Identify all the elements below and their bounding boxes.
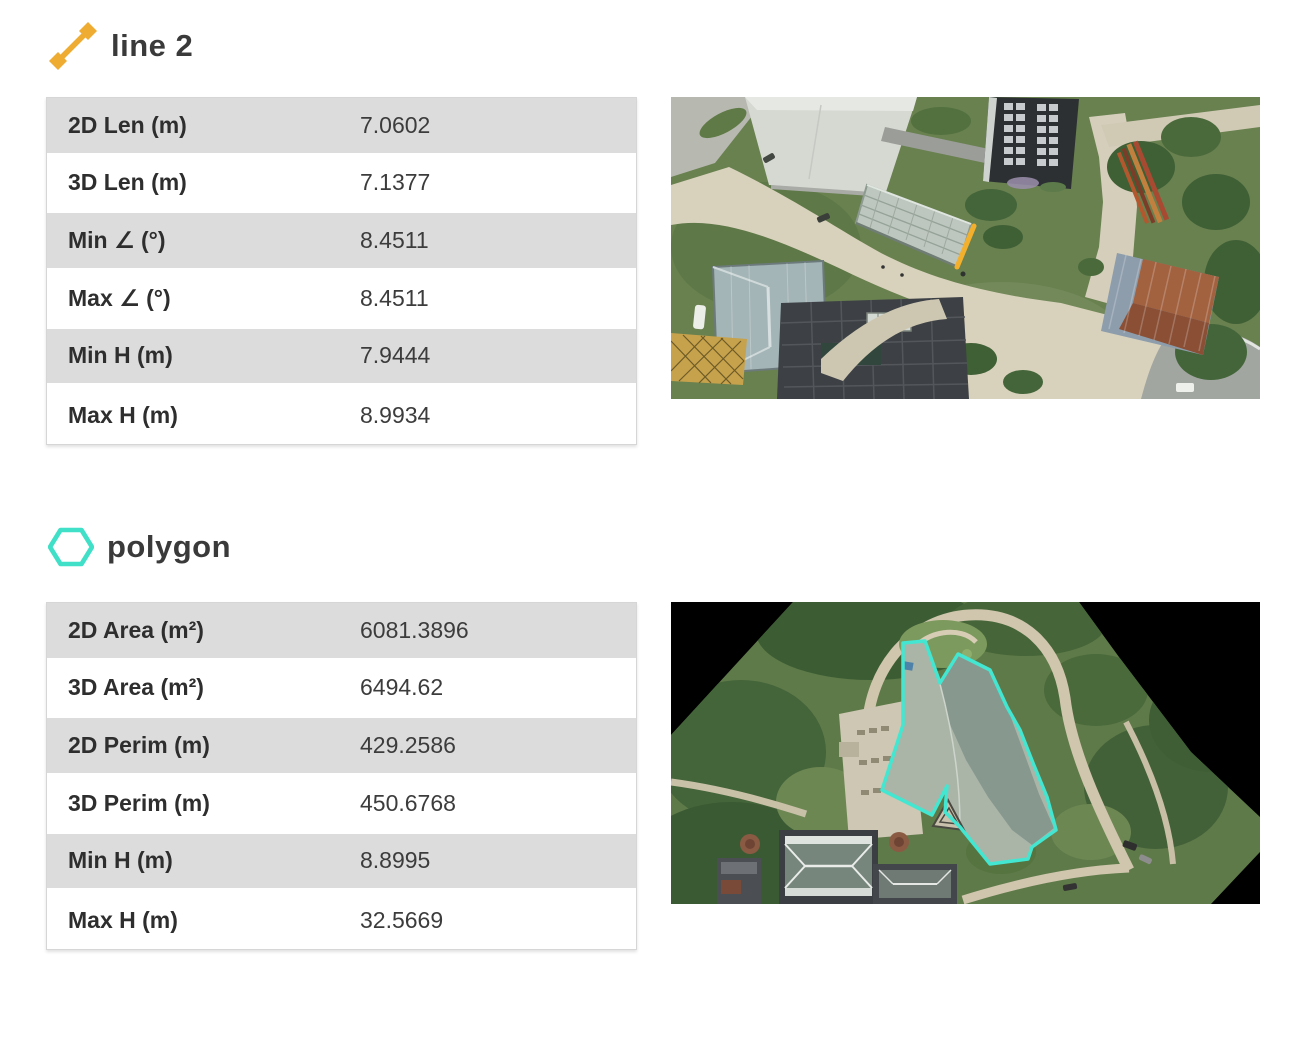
table-row: 3D Area (m²) 6494.62: [47, 661, 636, 719]
metric-label: Max H (m): [68, 402, 360, 429]
section-header-line2: line 2: [48, 21, 193, 71]
aerial-photo-polygon: [671, 602, 1260, 904]
metric-value: 7.1377: [360, 169, 430, 196]
metric-value: 8.9934: [360, 402, 430, 429]
measurement-report-page: { "page": { "background": "#ffffff" }, "…: [0, 0, 1300, 1038]
metric-value: 32.5669: [360, 907, 443, 934]
metric-value: 450.6768: [360, 790, 456, 817]
section-title: polygon: [107, 529, 231, 565]
table-row: 3D Perim (m) 450.6768: [47, 776, 636, 834]
metric-value: 429.2586: [360, 732, 456, 759]
table-row: 2D Len (m) 7.0602: [47, 98, 636, 156]
metric-label: Max ∠ (°): [68, 285, 360, 312]
aerial-photo-line2-svg: [671, 97, 1260, 399]
tiled-plaza: [671, 333, 747, 385]
section-title: line 2: [111, 28, 193, 64]
metric-label: Min H (m): [68, 847, 360, 874]
metric-value: 7.9444: [360, 342, 430, 369]
table-row: Max H (m) 32.5669: [47, 891, 636, 949]
aerial-photo-polygon-svg: [671, 602, 1260, 904]
section-header-polygon: polygon: [48, 526, 231, 568]
metric-value: 8.8995: [360, 847, 430, 874]
table-row: 2D Area (m²) 6081.3896: [47, 603, 636, 661]
metric-label: 2D Len (m): [68, 112, 360, 139]
hexagon-icon: [48, 526, 94, 568]
table-row: Min H (m) 8.8995: [47, 834, 636, 892]
metric-value: 7.0602: [360, 112, 430, 139]
table-row: Max ∠ (°) 8.4511: [47, 271, 636, 329]
metric-label: 2D Area (m²): [68, 617, 360, 644]
line-icon: [48, 21, 98, 71]
table-row: Min ∠ (°) 8.4511: [47, 213, 636, 271]
metric-value: 8.4511: [360, 285, 429, 312]
metric-label: 3D Len (m): [68, 169, 360, 196]
metric-label: 3D Area (m²): [68, 674, 360, 701]
measurement-table-polygon: 2D Area (m²) 6081.3896 3D Area (m²) 6494…: [46, 602, 637, 950]
table-row: Min H (m) 7.9444: [47, 329, 636, 387]
metric-label: Max H (m): [68, 907, 360, 934]
table-row: Max H (m) 8.9934: [47, 386, 636, 444]
metric-label: Min ∠ (°): [68, 227, 360, 254]
aerial-photo-line2: [671, 97, 1260, 399]
table-row: 2D Perim (m) 429.2586: [47, 718, 636, 776]
solar-rooftop: [983, 97, 1079, 192]
measurement-table-line2: 2D Len (m) 7.0602 3D Len (m) 7.1377 Min …: [46, 97, 637, 445]
metric-label: Min H (m): [68, 342, 360, 369]
table-row: 3D Len (m) 7.1377: [47, 156, 636, 214]
metric-label: 3D Perim (m): [68, 790, 360, 817]
metric-value: 6494.62: [360, 674, 443, 701]
metric-value: 8.4511: [360, 227, 429, 254]
metric-label: 2D Perim (m): [68, 732, 360, 759]
metric-value: 6081.3896: [360, 617, 469, 644]
